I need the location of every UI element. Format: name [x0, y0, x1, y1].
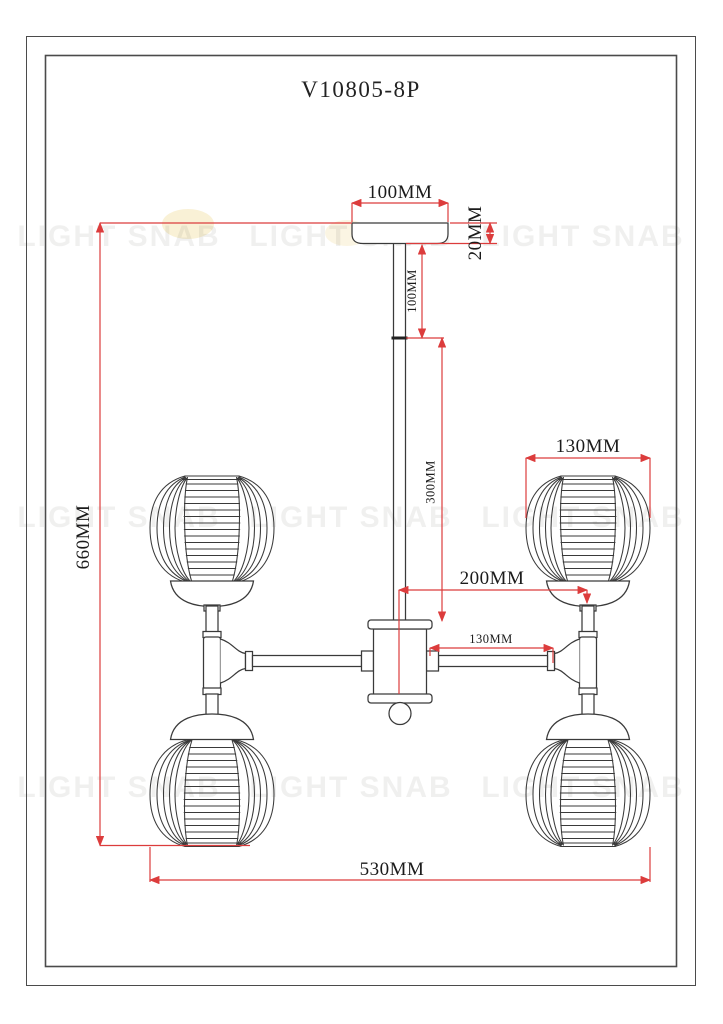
dim-label-canopy-height: 20MM	[465, 206, 486, 261]
dim-label-overall-width: 530MM	[360, 859, 425, 880]
dim-label-hub-to-shade: 200MM	[460, 568, 525, 589]
hub-finial-ball	[389, 703, 411, 725]
dim-label-rod-lower: 300MM	[424, 460, 438, 503]
watermark-text: LIGHT SNAB	[249, 501, 452, 534]
dim-label-overall-height: 660MM	[73, 505, 94, 570]
watermark-text: LIGHT SNAB	[481, 220, 684, 253]
dim-rod-upper: 100MM	[405, 245, 444, 338]
dim-canopy-width: 100MM	[352, 182, 448, 222]
hub-body	[374, 629, 427, 695]
hub-left-collar	[362, 651, 374, 671]
fixture-drawing	[150, 223, 650, 847]
drawing-page: LIGHT SNAB LIGHT SNAB LIGHT SNAB LIGHT S…	[0, 0, 723, 1024]
dim-label-arm-length: 130MM	[469, 632, 512, 646]
dim-label-canopy-width: 100MM	[368, 182, 433, 203]
hub-right-collar	[427, 651, 439, 671]
watermark-text: LIGHT SNAB	[249, 771, 452, 804]
ceiling-canopy	[352, 223, 448, 244]
technical-drawing: LIGHT SNAB LIGHT SNAB LIGHT SNAB LIGHT S…	[0, 0, 723, 1024]
left-arm-assembly	[171, 581, 362, 740]
center-hub	[362, 620, 439, 725]
dim-overall-width: 530MM	[150, 847, 650, 882]
model-number: V10805-8P	[301, 77, 421, 102]
dim-label-rod-upper: 100MM	[405, 269, 419, 312]
dim-rod-lower: 300MM	[424, 338, 443, 621]
watermark-text: LIGHT SNAB	[17, 220, 220, 253]
hub-top-cap	[368, 620, 432, 629]
right-arm-assembly	[439, 581, 630, 740]
dim-label-shade-diameter: 130MM	[556, 436, 621, 457]
dim-overall-height: 660MM	[73, 223, 352, 846]
hub-bottom-cap	[368, 694, 432, 703]
